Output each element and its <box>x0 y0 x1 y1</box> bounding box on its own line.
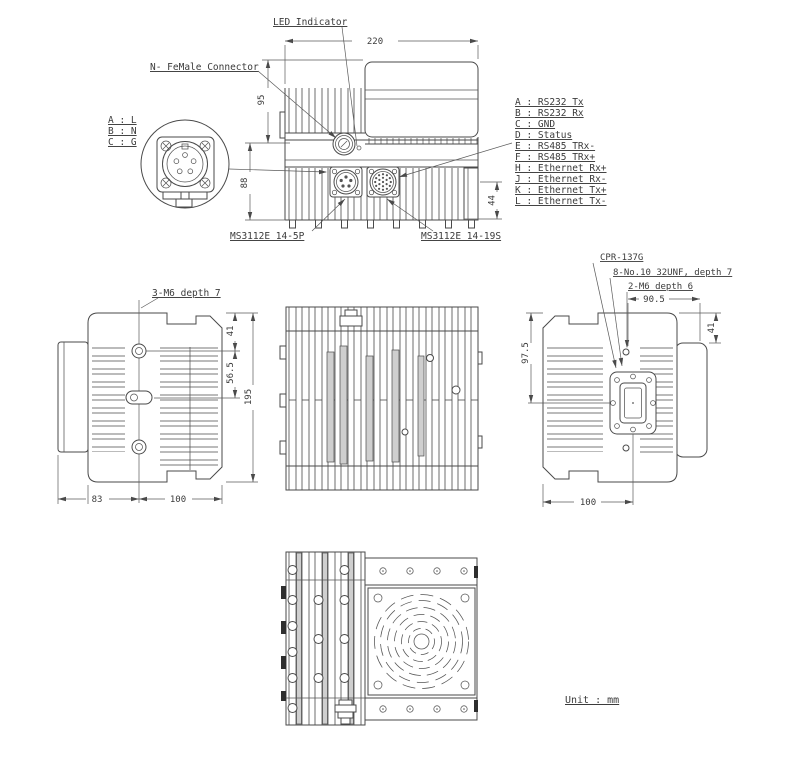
signal-pinout-list: A : RS232 Tx B : RS232 Rx C : GND D : St… <box>515 97 607 207</box>
power-pin-b: B : N <box>108 126 137 137</box>
front-rail-hatch <box>366 138 478 144</box>
front-left-boss <box>280 112 285 138</box>
unit-note: Unit : mm <box>565 695 619 706</box>
svg-text:41: 41 <box>226 326 236 337</box>
fan-plate <box>365 558 478 720</box>
right-view-cover <box>675 343 707 457</box>
front-cover <box>365 62 478 137</box>
svg-text:97.5: 97.5 <box>521 342 531 364</box>
front-feet <box>290 220 475 228</box>
dim-lower-height: 88 <box>240 143 286 220</box>
svg-text:LED Indicator: LED Indicator <box>273 17 348 28</box>
dim-right-100: 100 <box>543 484 633 508</box>
n-female-connector <box>333 133 355 155</box>
right-view-fins-left <box>547 347 603 452</box>
left-view-fins-left <box>92 347 125 452</box>
pinout-row: C : GND <box>515 119 555 130</box>
top-view-connector-boss <box>340 316 362 326</box>
svg-text:MS3112E 14-19S: MS3112E 14-19S <box>421 231 501 242</box>
led-indicator-lamp <box>357 146 361 150</box>
technical-drawing: 220 95 88 4 <box>0 0 800 762</box>
power-pin-a: A : L <box>108 115 137 126</box>
pinout-row: F : RS485 TRx+ <box>515 152 595 163</box>
svg-text:95: 95 <box>257 95 267 106</box>
power-pin-c: C : G <box>108 137 137 148</box>
pinout-row: J : Ethernet Rx- <box>515 174 607 185</box>
svg-text:2-M6 depth 6: 2-M6 depth 6 <box>628 282 693 292</box>
pinout-row: D : Status <box>515 130 572 141</box>
bottom-view <box>281 552 478 725</box>
pinout-row: L : Ethernet Tx- <box>515 196 607 207</box>
pinout-row: A : RS232 Tx <box>515 97 584 108</box>
svg-text:8-No.10 32UNF, depth 7: 8-No.10 32UNF, depth 7 <box>613 268 732 278</box>
bottom-view-left-tabs <box>281 586 286 701</box>
pinout-row: B : RS232 Rx <box>515 108 584 119</box>
svg-text:MS3112E 14-5P: MS3112E 14-5P <box>230 231 305 242</box>
svg-text:100: 100 <box>170 495 186 505</box>
svg-text:N- FeMale Connector: N- FeMale Connector <box>150 62 259 73</box>
dim-left-195: 195 <box>226 313 258 482</box>
left-view-fins-right <box>160 347 218 470</box>
m6-hole-bottom <box>623 445 629 451</box>
pinout-row: E : RS485 TRx- <box>515 141 595 152</box>
svg-text:83: 83 <box>92 495 103 505</box>
left-side-view: 3-M6 depth 7 41 56.5 <box>58 288 258 505</box>
svg-text:195: 195 <box>244 389 254 405</box>
waveguide-flange <box>610 372 656 434</box>
front-view: 220 95 88 4 <box>150 17 512 242</box>
svg-text:CPR-137G: CPR-137G <box>600 253 643 263</box>
drawing-canvas: 220 95 88 4 <box>0 0 800 762</box>
connector-5p <box>330 167 362 197</box>
svg-text:3-M6 depth 7: 3-M6 depth 7 <box>152 288 221 299</box>
connector-19s <box>367 167 399 197</box>
dim-right-97-5: 97.5 <box>521 313 543 403</box>
svg-text:88: 88 <box>240 178 250 189</box>
callout-3m6: 3-M6 depth 7 <box>141 288 221 308</box>
svg-text:220: 220 <box>367 37 383 47</box>
m6-hole-top <box>623 349 629 355</box>
top-view <box>280 307 482 490</box>
svg-text:90.5: 90.5 <box>643 295 665 305</box>
left-view-lid <box>58 342 88 452</box>
dim-left-100: 100 <box>139 485 222 505</box>
top-view-fins <box>286 307 478 490</box>
svg-text:44: 44 <box>488 195 498 206</box>
right-side-view: CPR-137G 8-No.10 32UNF, depth 7 2-M6 dep… <box>521 253 732 508</box>
svg-text:41: 41 <box>707 323 717 334</box>
svg-text:56.5: 56.5 <box>226 362 236 384</box>
pinout-row: K : Ethernet Tx+ <box>515 185 607 196</box>
svg-text:100: 100 <box>580 498 596 508</box>
pinout-row: H : Ethernet Rx+ <box>515 163 607 174</box>
